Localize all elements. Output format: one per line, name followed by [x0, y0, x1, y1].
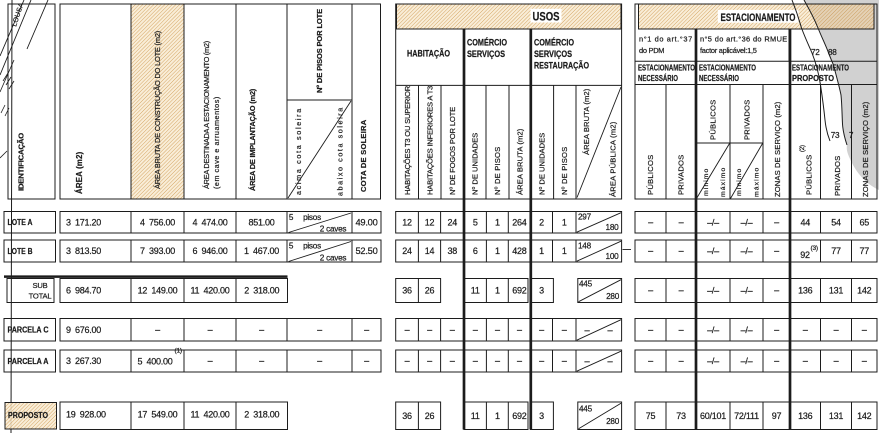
svg-text:mínimo: mínimo: [736, 169, 743, 196]
svg-text:52.50: 52.50: [355, 246, 377, 256]
svg-text:–: –: [803, 356, 808, 366]
svg-text:COTA DE SOLEIRA: COTA DE SOLEIRA: [359, 119, 368, 192]
svg-text:(2): (2): [799, 145, 806, 152]
svg-text:54: 54: [831, 217, 841, 227]
svg-text:11: 11: [471, 411, 480, 421]
svg-text:PÚBLICOS: PÚBLICOS: [805, 155, 814, 195]
svg-text:100: 100: [606, 252, 620, 261]
svg-text:NECESSÁRIO: NECESSÁRIO: [638, 73, 678, 83]
svg-text:–: –: [648, 324, 653, 334]
svg-text:1: 1: [539, 246, 544, 256]
svg-text:ÁREA DESTINADA A ESTACIONAMENT: ÁREA DESTINADA A ESTACIONAMENTO (m2): [202, 41, 211, 189]
svg-text:–: –: [259, 356, 264, 366]
svg-text:3 267.30: 3 267.30: [66, 356, 101, 366]
svg-text:–: –: [539, 324, 544, 334]
svg-text:HABITAÇÕES T3 OU SUPERIOR: HABITAÇÕES T3 OU SUPERIOR: [403, 85, 412, 195]
svg-text:–: –: [648, 217, 653, 227]
svg-text:(3): (3): [811, 245, 818, 252]
svg-text:2 caves: 2 caves: [320, 225, 347, 234]
svg-text:TOTAL: TOTAL: [29, 292, 52, 301]
svg-text:pisos: pisos: [303, 242, 321, 251]
svg-text:LOTE B: LOTE B: [8, 247, 33, 256]
svg-text:–/–: –/–: [707, 217, 719, 227]
svg-text:n°1 do art.°37: n°1 do art.°37: [639, 35, 692, 44]
svg-text:77: 77: [831, 246, 841, 256]
svg-text:12 149.00: 12 149.00: [138, 286, 178, 296]
svg-text:PRIVADOS: PRIVADOS: [677, 155, 686, 195]
svg-text:4 756.00: 4 756.00: [140, 217, 175, 227]
svg-text:–: –: [679, 356, 684, 366]
svg-text:2 caves: 2 caves: [320, 254, 347, 263]
svg-text:Nº DE UNIDADES: Nº DE UNIDADES: [538, 133, 547, 195]
svg-text:1: 1: [495, 411, 500, 421]
svg-text:12: 12: [402, 217, 412, 227]
svg-text:n°5 do art.°36 do RMUE: n°5 do art.°36 do RMUE: [700, 35, 787, 44]
svg-text:–: –: [155, 324, 160, 334]
svg-text:–/–: –/–: [707, 286, 719, 296]
svg-text:ESTACIONAMENTO: ESTACIONAMENTO: [638, 64, 695, 73]
svg-text:131: 131: [829, 286, 844, 296]
svg-text:–: –: [608, 325, 614, 335]
svg-text:–: –: [562, 356, 567, 366]
svg-text:ESTACIONAMENTO: ESTACIONAMENTO: [792, 64, 849, 73]
svg-text:–: –: [317, 324, 322, 334]
svg-text:44: 44: [800, 217, 810, 227]
svg-text:ÁREA BRUTA (m2): ÁREA BRUTA (m2): [516, 128, 525, 195]
svg-text:PRIVADOS: PRIVADOS: [743, 100, 752, 140]
svg-text:142: 142: [857, 411, 872, 421]
svg-text:24: 24: [448, 217, 458, 227]
svg-text:5: 5: [289, 213, 294, 222]
svg-text:65: 65: [859, 217, 869, 227]
svg-text:ESTACIONAMENTO: ESTACIONAMENTO: [699, 64, 756, 73]
svg-text:24: 24: [402, 246, 412, 256]
svg-text:11: 11: [471, 286, 480, 296]
svg-text:pisos: pisos: [303, 213, 321, 222]
svg-text:73: 73: [676, 411, 686, 421]
svg-text:7: 7: [849, 131, 854, 140]
svg-text:ESTACIONAMENTO: ESTACIONAMENTO: [721, 12, 796, 24]
svg-text:5 400.00: 5 400.00: [137, 356, 172, 366]
svg-text:ÁREA DE IMPLANTAÇÃO (m2): ÁREA DE IMPLANTAÇÃO (m2): [248, 88, 257, 191]
svg-text:77: 77: [859, 246, 869, 256]
svg-text:19 928.00: 19 928.00: [66, 410, 106, 420]
svg-text:Nº DE PISOS POR LOTE: Nº DE PISOS POR LOTE: [315, 9, 324, 93]
svg-text:142: 142: [857, 286, 872, 296]
svg-text:–: –: [364, 356, 369, 366]
svg-text:1: 1: [495, 217, 500, 227]
svg-text:–: –: [774, 246, 779, 256]
svg-text:–: –: [208, 356, 213, 366]
svg-text:445: 445: [579, 405, 593, 414]
svg-text:–: –: [317, 356, 322, 366]
svg-text:–: –: [648, 356, 653, 366]
svg-text:1: 1: [495, 246, 500, 256]
svg-text:PROPOSTO: PROPOSTO: [8, 411, 48, 420]
svg-text:92: 92: [800, 250, 810, 260]
svg-text:131: 131: [829, 411, 844, 421]
svg-text:máximo: máximo: [720, 168, 727, 197]
svg-text:280: 280: [606, 417, 620, 426]
svg-text:428: 428: [512, 246, 527, 256]
svg-text:PARCELA A: PARCELA A: [8, 357, 49, 366]
svg-text:4 474.00: 4 474.00: [192, 217, 227, 227]
svg-text:3: 3: [539, 286, 544, 296]
svg-text:17 549.00: 17 549.00: [138, 410, 178, 420]
svg-text:USOS: USOS: [533, 12, 560, 24]
svg-text:49.00: 49.00: [355, 217, 377, 227]
svg-text:38: 38: [448, 246, 458, 256]
svg-text:3 171.20: 3 171.20: [66, 217, 101, 227]
svg-text:–/–: –/–: [741, 217, 753, 227]
svg-text:–: –: [648, 246, 653, 256]
svg-text:75: 75: [646, 411, 656, 421]
svg-text:445: 445: [579, 280, 593, 289]
svg-text:11 420.00: 11 420.00: [190, 410, 229, 420]
svg-text:RESTAURAÇÃO: RESTAURAÇÃO: [534, 61, 589, 72]
svg-text:136: 136: [798, 286, 813, 296]
svg-text:COMÉRCIO: COMÉRCIO: [534, 38, 574, 49]
svg-text:3: 3: [539, 411, 544, 421]
svg-text:1: 1: [562, 246, 567, 256]
svg-text:5: 5: [473, 217, 478, 227]
svg-text:60/101: 60/101: [700, 411, 726, 421]
svg-text:–: –: [774, 324, 779, 334]
svg-text:72/111: 72/111: [734, 411, 759, 421]
svg-text:11 420.00: 11 420.00: [190, 286, 229, 296]
svg-text:–: –: [405, 324, 410, 334]
svg-text:–: –: [679, 217, 684, 227]
svg-text:3 813.50: 3 813.50: [66, 246, 101, 256]
svg-text:–: –: [450, 356, 455, 366]
svg-text:36: 36: [402, 286, 412, 296]
svg-text:–: –: [834, 324, 839, 334]
svg-text:297: 297: [578, 213, 592, 222]
svg-text:–: –: [539, 356, 544, 366]
svg-text:73: 73: [831, 131, 840, 140]
svg-text:–: –: [450, 324, 455, 334]
svg-text:–: –: [774, 356, 779, 366]
svg-text:ZONAS DE SERVIÇO (m2): ZONAS DE SERVIÇO (m2): [773, 101, 782, 197]
svg-text:SERVIÇOS: SERVIÇOS: [467, 49, 505, 60]
svg-text:–: –: [648, 285, 653, 295]
svg-text:180: 180: [606, 223, 620, 232]
svg-text:(1): (1): [175, 348, 182, 355]
svg-text:–: –: [208, 324, 213, 334]
svg-text:692: 692: [512, 411, 527, 421]
svg-text:–/–: –/–: [741, 325, 753, 335]
svg-text:–: –: [427, 356, 432, 366]
svg-text:5: 5: [289, 242, 294, 251]
svg-text:–: –: [562, 324, 567, 334]
svg-text:–: –: [495, 356, 500, 366]
svg-text:IDENTIFICAÇÃO: IDENTIFICAÇÃO: [17, 132, 26, 191]
svg-text:–: –: [495, 324, 500, 334]
svg-text:–: –: [862, 356, 867, 366]
svg-text:12: 12: [425, 217, 435, 227]
svg-text:–: –: [517, 324, 522, 334]
svg-text:HABITAÇÃO: HABITAÇÃO: [407, 49, 450, 60]
svg-text:ÁREA BRUTA (m2): ÁREA BRUTA (m2): [582, 88, 591, 155]
svg-text:–: –: [774, 217, 779, 227]
svg-text:LOTE A: LOTE A: [8, 218, 33, 227]
svg-text:–: –: [259, 324, 264, 334]
svg-text:NECESSÁRIO: NECESSÁRIO: [699, 73, 739, 83]
svg-text:–/–: –/–: [741, 356, 753, 366]
svg-text:SUB: SUB: [32, 281, 47, 290]
svg-text:LOUSA: LOUSA: [11, 2, 25, 28]
svg-text:1: 1: [495, 286, 500, 296]
svg-text:14: 14: [425, 246, 435, 256]
svg-text:ÁREA (m2): ÁREA (m2): [75, 151, 84, 194]
svg-text:136: 136: [798, 411, 813, 421]
svg-text:6 946.00: 6 946.00: [192, 246, 227, 256]
svg-text:ÁREA PÚBLICA (m2): ÁREA PÚBLICA (m2): [609, 121, 618, 197]
svg-text:–: –: [679, 246, 684, 256]
svg-text:–: –: [679, 324, 684, 334]
svg-text:PROPOSTO: PROPOSTO: [792, 74, 835, 83]
svg-text:ZONAS DE SERVIÇO (m2): ZONAS DE SERVIÇO (m2): [861, 101, 870, 197]
svg-text:do PDM: do PDM: [639, 46, 664, 55]
svg-text:abaixo cota soleira: abaixo cota soleira: [336, 108, 345, 196]
svg-text:mínimo: mínimo: [703, 169, 710, 196]
svg-text:–: –: [608, 356, 614, 366]
svg-text:–: –: [517, 356, 522, 366]
svg-text:7 393.00: 7 393.00: [140, 246, 175, 256]
svg-text:SERVIÇOS: SERVIÇOS: [534, 49, 572, 60]
svg-text:26: 26: [425, 411, 435, 421]
svg-text:HABITAÇÕES INFERIORES A T3: HABITAÇÕES INFERIORES A T3: [426, 86, 435, 195]
svg-text:–: –: [405, 356, 410, 366]
svg-text:–: –: [364, 324, 369, 334]
svg-text:–: –: [473, 356, 478, 366]
svg-text:1: 1: [562, 217, 567, 227]
svg-text:–: –: [862, 324, 867, 334]
svg-text:6 984.70: 6 984.70: [66, 286, 101, 296]
svg-text:COMÉRCIO: COMÉRCIO: [467, 38, 507, 49]
svg-text:máximo: máximo: [753, 168, 760, 197]
svg-text:–/–: –/–: [707, 356, 719, 366]
svg-text:264: 264: [512, 217, 527, 227]
svg-text:6: 6: [473, 246, 478, 256]
svg-text:280: 280: [606, 292, 620, 301]
svg-text:9 676.00: 9 676.00: [66, 325, 101, 335]
svg-text:–/–: –/–: [707, 325, 719, 335]
svg-text:2 318.00: 2 318.00: [244, 286, 279, 296]
svg-text:–/–: –/–: [707, 246, 719, 256]
svg-text:–: –: [585, 325, 591, 335]
svg-text:–: –: [427, 324, 432, 334]
svg-text:PÚBLICOS: PÚBLICOS: [646, 155, 655, 195]
svg-text:97: 97: [772, 411, 782, 421]
svg-text:851.00: 851.00: [248, 217, 274, 227]
svg-text:ÁREA BRUTA DE CONSTRUÇÃO DO LO: ÁREA BRUTA DE CONSTRUÇÃO DO LOTE (m2): [153, 31, 162, 189]
svg-text:–: –: [679, 285, 684, 295]
svg-text:–: –: [585, 356, 591, 366]
svg-text:–: –: [473, 324, 478, 334]
svg-text:36: 36: [402, 411, 412, 421]
svg-text:Nº DE UNIDADES: Nº DE UNIDADES: [471, 133, 480, 195]
svg-text:Nº DE PISOS: Nº DE PISOS: [493, 147, 502, 195]
svg-text:Nº DE FOGOS POR LOTE: Nº DE FOGOS POR LOTE: [448, 107, 457, 195]
svg-text:148: 148: [578, 241, 592, 250]
svg-text:Nº DE PISOS: Nº DE PISOS: [560, 147, 569, 195]
svg-text:–/–: –/–: [741, 246, 753, 256]
svg-text:692: 692: [512, 286, 527, 296]
svg-text:PARCELA C: PARCELA C: [8, 326, 49, 335]
svg-text:–: –: [834, 356, 839, 366]
svg-text:–: –: [774, 285, 779, 295]
svg-text:PÚBLICOS: PÚBLICOS: [709, 100, 718, 140]
svg-text:factor aplicável:1,5: factor aplicável:1,5: [700, 46, 757, 55]
svg-text:(em cave e arruamentos): (em cave e arruamentos): [212, 97, 221, 189]
svg-text:26: 26: [425, 286, 435, 296]
svg-text:1 467.00: 1 467.00: [244, 246, 279, 256]
svg-text:2: 2: [539, 217, 544, 227]
svg-text:2 318.00: 2 318.00: [244, 410, 279, 420]
svg-text:–/–: –/–: [741, 286, 753, 296]
svg-text:PRIVADOS: PRIVADOS: [833, 156, 842, 196]
svg-text:–: –: [803, 324, 808, 334]
svg-text:72: 72: [811, 48, 820, 57]
